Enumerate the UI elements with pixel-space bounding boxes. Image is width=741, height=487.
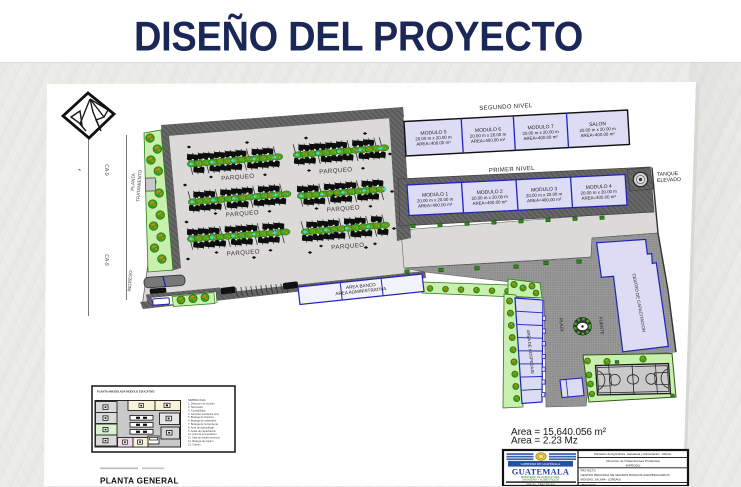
svg-text:1. Direccion de modulo: 1. Direccion de modulo (188, 402, 215, 406)
svg-text:SIMBOLOGIA: SIMBOLOGIA (188, 398, 206, 402)
svg-text:9. Aulas de capacitacion: 9. Aulas de capacitacion (188, 429, 217, 433)
svg-text:Area = 2.23 Mz: Area = 2.23 Mz (511, 436, 578, 447)
svg-text:PROYECTO:: PROYECTO: (581, 468, 597, 472)
svg-text:CENTRO REGIONAL DE GRANOS BASI: CENTRO REGIONAL DE GRANOS BASICOS AGROPE… (581, 473, 670, 477)
svg-text:VISION : CRECER XXI: VISION : CRECER XXI (526, 482, 555, 486)
svg-text:-DIPRODU-: -DIPRODU- (625, 463, 641, 467)
svg-text:8. Area de aprendizaje: 8. Area de aprendizaje (188, 425, 215, 429)
svg-text:7. Bodega de herramienta: 7. Bodega de herramienta (188, 422, 219, 426)
svg-text:CA-9: CA-9 (103, 254, 109, 266)
svg-text:13. Cafetin: 13. Cafetin (188, 442, 201, 446)
svg-text:5. Bodega de limpieza: 5. Bodega de limpieza (188, 415, 214, 419)
svg-text:PLANTA AMUEBLADA MODULO EDUCAT: PLANTA AMUEBLADA MODULO EDUCATIVO (97, 390, 155, 394)
svg-text:3. Contabilidad: 3. Contabilidad (188, 408, 206, 412)
svg-text:GANADERIA Y ALIMENTACION: GANADERIA Y ALIMENTACION (522, 478, 559, 482)
svg-text:6. Bodega de materiales: 6. Bodega de materiales (188, 419, 217, 423)
svg-text:11. Sala de espera services: 11. Sala de espera services (188, 436, 221, 440)
svg-text:Ministerio de Agricultura, Gan: Ministerio de Agricultura, Ganaderia y A… (594, 452, 671, 456)
svg-text:Direccion de Infraestructura P: Direccion de Infraestructura Productiva (606, 459, 660, 463)
svg-text:10. Area de computacion: 10. Area de computacion (188, 432, 217, 436)
svg-text:4. Servicios sanitarios hom.: 4. Servicios sanitarios hom. (188, 412, 220, 416)
svg-text:CA-9: CA-9 (103, 164, 109, 176)
svg-text:12. Bodega de equipo: 12. Bodega de equipo (188, 439, 214, 443)
svg-text:ELEVADO: ELEVADO (657, 177, 681, 184)
svg-text:2. Secretaria: 2. Secretaria (188, 405, 203, 409)
svg-text:PLANTA GENERAL: PLANTA GENERAL (100, 477, 179, 486)
svg-text:GOBIERNO DE GUATEMALA: GOBIERNO DE GUATEMALA (521, 462, 561, 466)
svg-text:MONJAS, JALAPA - (CREAN): MONJAS, JALAPA - (CREAN) (581, 478, 621, 482)
